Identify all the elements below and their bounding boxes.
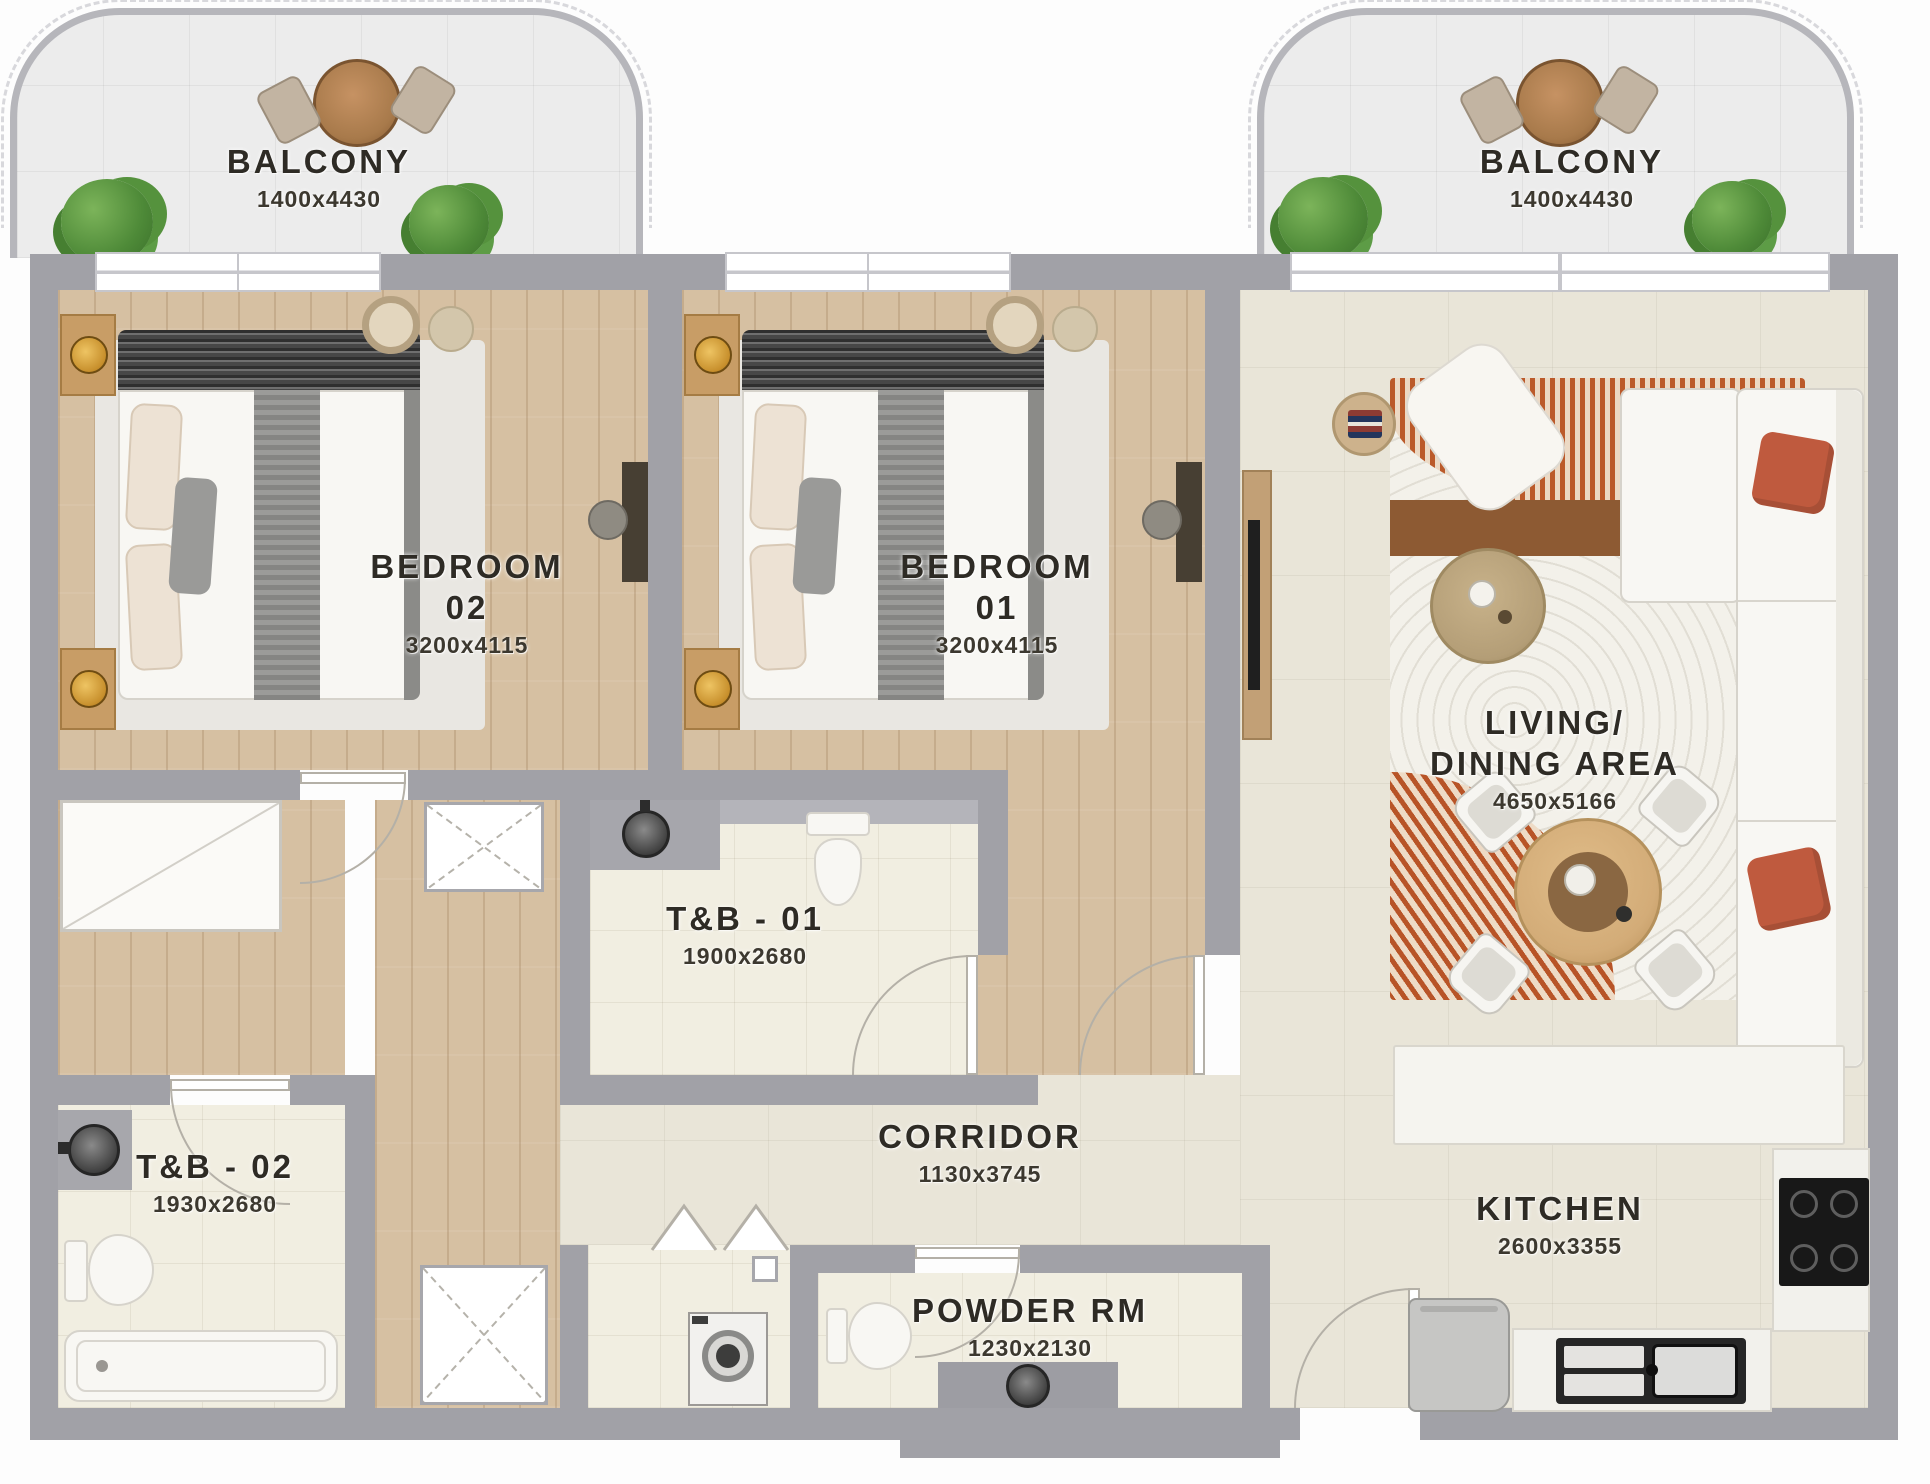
wall [408,770,1008,800]
tb-02-dims: 1930x2680 [90,1187,340,1221]
living-dining-dims: 4650x5166 [1395,784,1715,818]
outdoor-table-icon [313,59,401,147]
faucet-icon [58,1142,70,1154]
powder-rm-dims: 1230x2130 [885,1331,1175,1365]
wall [290,1075,345,1105]
sofa-icon [1620,388,1742,603]
armchair-icon [362,296,420,354]
wall [1020,1245,1270,1273]
burner-icon [1790,1244,1818,1272]
wall [58,1075,170,1105]
fridge-icon [1408,1298,1510,1412]
desk-chair-icon [588,500,628,540]
floor-plan: BALCONY 1400x4430 BALCONY 1400x4430 [0,0,1930,1484]
wall [818,1245,915,1273]
plate-icon [1564,864,1596,896]
decor-dot [1498,610,1512,624]
room-label-balcony-left: BALCONY 1400x4430 [159,141,479,216]
burner-icon [1790,1190,1818,1218]
lamp-icon [70,336,108,374]
corridor-dims: 1130x3745 [845,1157,1115,1191]
plant-icon [409,185,489,261]
burner-icon [1830,1244,1858,1272]
bedroom-02-dims: 3200x4115 [322,628,612,662]
lamp-icon [694,336,732,374]
bedroom-01-name: BEDROOM [852,546,1142,587]
sofa-cushion-divider [1738,820,1836,822]
lamp-icon [70,670,108,708]
toilet-icon [64,1240,88,1302]
kitchen-island-icon [1393,1045,1845,1145]
wall [1420,1408,1898,1440]
bedroom-01-dims: 3200x4115 [852,628,1142,662]
decor-dot [1616,906,1632,922]
desk-chair-icon [1142,500,1182,540]
kitchen-dims: 2600x3355 [1430,1229,1690,1263]
sofa-backrest [1836,390,1862,1066]
wall [790,1245,818,1408]
balcony-left-name: BALCONY [159,141,479,182]
wall [560,1245,588,1408]
room-label-kitchen: KITCHEN 2600x3355 [1430,1188,1690,1263]
drain-icon [96,1360,108,1372]
kitchen-name: KITCHEN [1430,1188,1690,1229]
fridge-handle [1420,1306,1498,1312]
toilet-icon [806,812,870,836]
balcony-right-name: BALCONY [1412,141,1732,182]
tv-icon [1248,520,1260,690]
sink-compartment [1564,1374,1644,1396]
outdoor-chair-icon [1457,73,1527,147]
sink-icon [622,810,670,858]
bedroom-02-name: BEDROOM [322,546,612,587]
bifold-door-icon [650,1202,794,1252]
tb-02-name: T&B - 02 [90,1146,340,1187]
wall [900,1440,1280,1458]
corridor-name: CORRIDOR [845,1116,1115,1157]
room-label-bedroom-02: BEDROOM 02 3200x4115 [322,546,612,662]
living-dining-name-2: DINING AREA [1395,743,1715,784]
room-label-balcony-right: BALCONY 1400x4430 [1412,141,1732,216]
bedroom-02-number: 02 [322,587,612,628]
balcony-left-dims: 1400x4430 [159,182,479,216]
window [95,252,381,292]
linen-closet-icon [420,1265,548,1405]
wardrobe-icon [60,800,282,932]
wall [560,1075,1038,1105]
wall [1242,1273,1270,1408]
room-label-tb-02: T&B - 02 1930x2680 [90,1146,340,1221]
window [1290,252,1830,292]
books-icon [1348,410,1382,438]
outdoor-chair-icon [254,73,324,147]
living-dining-name-1: LIVING/ [1395,702,1715,743]
outdoor-chair-icon [387,63,458,138]
plant-icon [1278,177,1368,261]
tb-01-name: T&B - 01 [630,898,860,939]
room-label-tb-01: T&B - 01 1900x2680 [630,898,860,973]
powder-rm-name: POWDER RM [885,1290,1175,1331]
washer-drum-icon [716,1344,740,1368]
cushion-icon [168,477,218,596]
room-label-bedroom-01: BEDROOM 01 3200x4115 [852,546,1142,662]
vent-icon [752,1256,778,1282]
wall [30,254,58,1440]
wall [30,1408,1300,1440]
sofa-cushion-divider [1738,600,1836,602]
cup-icon [1468,580,1496,608]
bed-runner-icon [254,390,320,700]
faucet-icon [1646,1364,1658,1376]
linen-closet-icon [424,802,544,892]
balcony-right: BALCONY 1400x4430 [1257,8,1854,258]
lamp-icon [694,670,732,708]
bedroom-01-number: 01 [852,587,1142,628]
outdoor-chair-icon [1590,63,1661,138]
faucet-icon [640,800,650,812]
side-table-icon [428,306,474,352]
room-label-powder-rm: POWDER RM 1230x2130 [885,1290,1175,1365]
pillow-icon [1750,430,1836,516]
pillow-icon [1745,845,1833,933]
wall [1868,254,1898,1440]
plant-icon [1692,181,1772,257]
toilet-icon [826,1308,848,1364]
wall [58,770,300,800]
room-label-living-dining: LIVING/ DINING AREA 4650x5166 [1395,702,1715,818]
sink-basin [1652,1344,1738,1398]
washer-panel [692,1316,708,1324]
outdoor-table-icon [1516,59,1604,147]
bathtub-inner [76,1340,326,1392]
armchair-icon [986,296,1044,354]
side-table-icon [1052,306,1098,352]
wall [1205,290,1240,955]
window [725,252,1011,292]
wall [978,800,1008,955]
sink-icon [1006,1364,1050,1408]
room-label-corridor: CORRIDOR 1130x3745 [845,1116,1115,1191]
cushion-icon [792,477,842,596]
balcony-left: BALCONY 1400x4430 [10,8,643,258]
wall [648,290,682,770]
wall [560,800,590,1075]
burner-icon [1830,1190,1858,1218]
tb-01-dims: 1900x2680 [630,939,860,973]
sink-compartment [1564,1346,1644,1368]
wall [345,1075,375,1408]
balcony-right-dims: 1400x4430 [1412,182,1732,216]
